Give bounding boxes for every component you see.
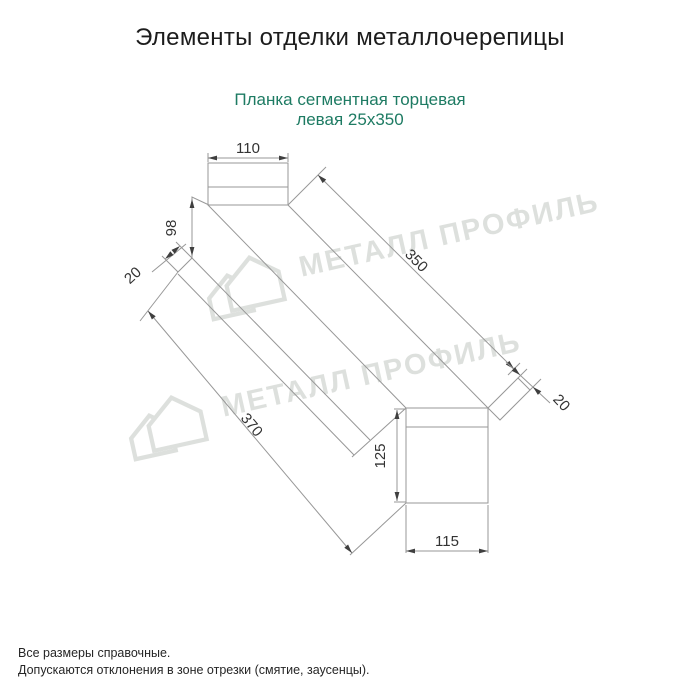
dimension-left-fold: 20 (121, 242, 192, 288)
dimension-label: 20 (549, 391, 573, 415)
top-end-view-rect (208, 163, 288, 205)
strip-outline (178, 197, 530, 457)
footnote-line1: Все размеры справочные. (18, 645, 370, 662)
dimension-label: 110 (236, 140, 260, 157)
dimension-label: 115 (435, 533, 459, 550)
dimension-bottom-width: 115 (406, 505, 488, 553)
right-end-fold-flap (488, 378, 530, 420)
left-end-cut-edge (178, 197, 209, 272)
dimension-label: 98 (163, 220, 180, 237)
top-end-view (208, 163, 288, 205)
footnote-line2: Допускаются отклонения в зоне отрезки (с… (18, 662, 370, 679)
dimension-top-length: 350 (288, 167, 520, 375)
footnotes: Все размеры справочные. Допускаются откл… (18, 645, 370, 678)
dimension-label: 350 (401, 246, 431, 276)
dimension-top-width: 110 (208, 140, 288, 162)
dimension-right-fold: 20 (506, 362, 573, 415)
dimension-label: 20 (121, 264, 145, 288)
dimension-bottom-length: 370 (140, 272, 406, 555)
dimension-label: 370 (237, 410, 266, 440)
bottom-end-view-rect (406, 408, 488, 503)
bottom-end-view (406, 408, 488, 503)
flange-far-edge (288, 205, 488, 408)
dimension-label: 125 (372, 443, 389, 468)
technical-drawing: 110 98 20 350 20 370 (0, 0, 700, 700)
flange-near-edge (208, 205, 406, 408)
face-bottom-edge (192, 258, 370, 440)
